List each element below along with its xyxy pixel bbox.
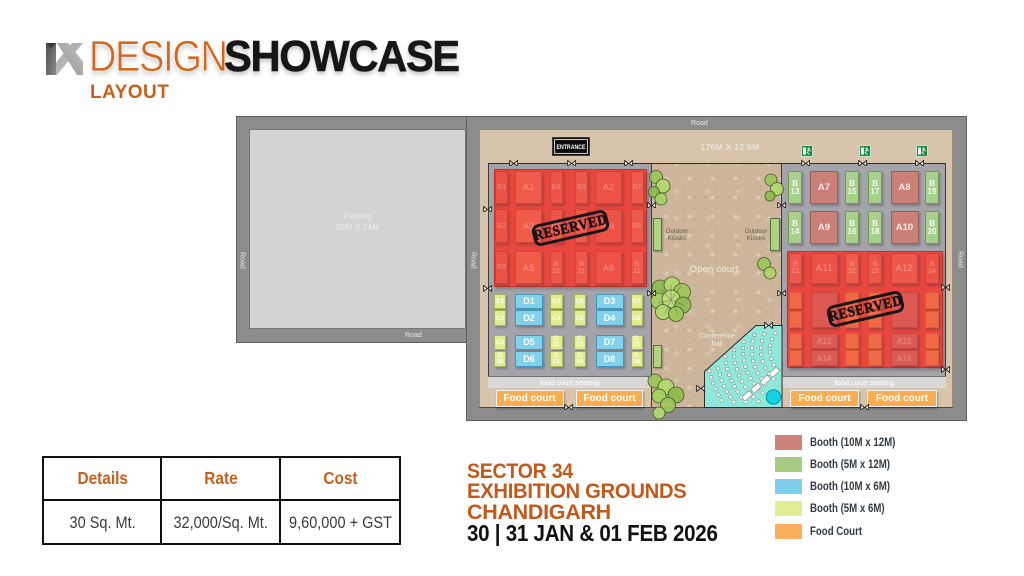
svg-text:ENTRANCE: ENTRANCE [556, 144, 586, 151]
